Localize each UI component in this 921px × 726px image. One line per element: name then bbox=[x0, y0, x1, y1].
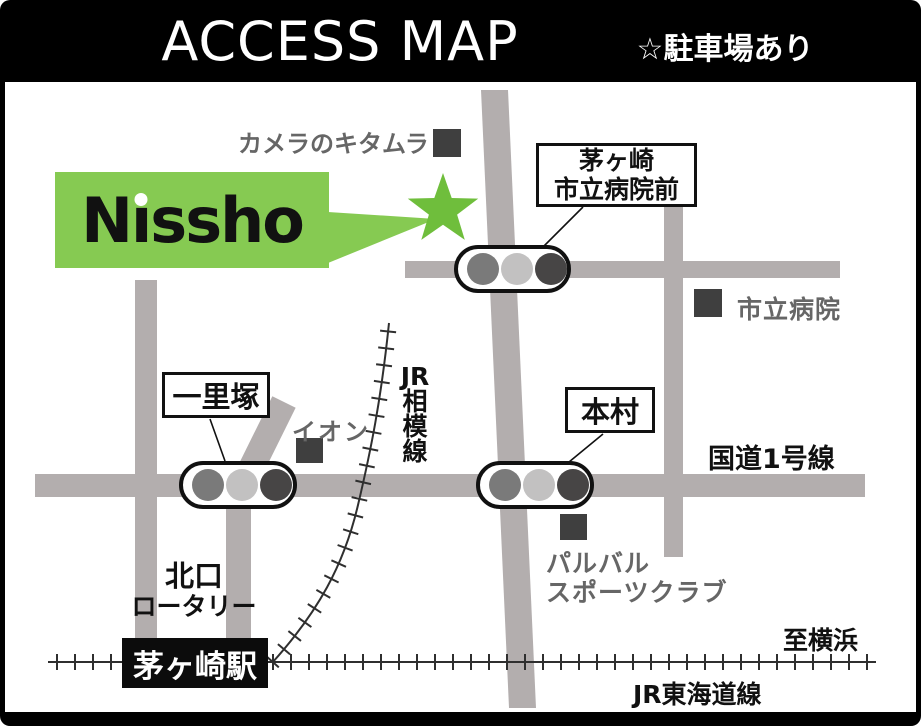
nissho-logo-callout: Nıssho bbox=[55, 172, 329, 268]
landmark-city-hospital: 市立病院 bbox=[737, 290, 841, 326]
chigasaki-station-box: 茅ヶ崎駅 bbox=[122, 638, 268, 688]
logo-callout-pointer bbox=[328, 212, 436, 263]
direction-label-to-yokohama: 至横浜 bbox=[783, 621, 858, 657]
sagami-char-0: JR bbox=[398, 364, 432, 389]
traffic-light-ichirizuka bbox=[181, 463, 295, 507]
location-star-icon bbox=[408, 173, 478, 240]
bus-stop-sign-hospital-mae: 茅ヶ崎 市立病院前 bbox=[536, 143, 697, 207]
landmark-palval-sports-club: パルバル スポーツクラブ bbox=[546, 549, 728, 607]
north-exit-line1: 北口 bbox=[124, 560, 264, 593]
north-exit-line2: ロータリー bbox=[124, 593, 264, 621]
palval-line1: パルバル bbox=[546, 549, 728, 578]
connector-ichirizuka-sign bbox=[210, 419, 225, 461]
road-right-vertical bbox=[664, 202, 683, 557]
north-exit-rotary-label: 北口 ロータリー bbox=[124, 560, 264, 621]
sagami-char-3: 線 bbox=[398, 439, 432, 464]
traffic-light-honmura bbox=[478, 463, 592, 507]
hospital-sign-line1: 茅ヶ崎 bbox=[579, 146, 654, 175]
traffic-light-hospital-mae bbox=[456, 247, 569, 291]
palval-line2: スポーツクラブ bbox=[546, 578, 728, 607]
intersection-sign-honmura: 本村 bbox=[565, 387, 655, 433]
road-label-route1: 国道1号線 bbox=[708, 437, 835, 476]
connector-honmura-sign bbox=[569, 434, 603, 462]
road-main-vertical bbox=[481, 90, 536, 708]
railway-label-jr-tokaido: JR東海道線 bbox=[633, 675, 762, 711]
connector-hospital-sign bbox=[541, 207, 583, 249]
road-route1-horizontal bbox=[35, 474, 865, 497]
sagami-char-2: 模 bbox=[398, 414, 432, 439]
landmark-aeon: イオン bbox=[292, 412, 370, 447]
city-hospital-square-icon bbox=[694, 289, 722, 317]
sagami-char-1: 相 bbox=[398, 389, 432, 414]
railway-label-jr-sagami: JR 相 模 線 bbox=[398, 364, 432, 464]
camera-kitamura-square-icon bbox=[433, 129, 461, 157]
landmark-camera-kitamura: カメラのキタムラ bbox=[238, 124, 429, 159]
palval-square-icon bbox=[560, 514, 587, 540]
parking-note: ☆駐車場あり bbox=[560, 24, 890, 68]
access-map: ACCESS MAP ☆駐車場あり Nıssho 茅ヶ崎 市立病院前 一里塚 本… bbox=[0, 0, 921, 726]
intersection-sign-ichirizuka: 一里塚 bbox=[162, 372, 270, 418]
nissho-logo-text: Nıssho bbox=[81, 184, 303, 257]
hospital-sign-line2: 市立病院前 bbox=[554, 175, 679, 204]
